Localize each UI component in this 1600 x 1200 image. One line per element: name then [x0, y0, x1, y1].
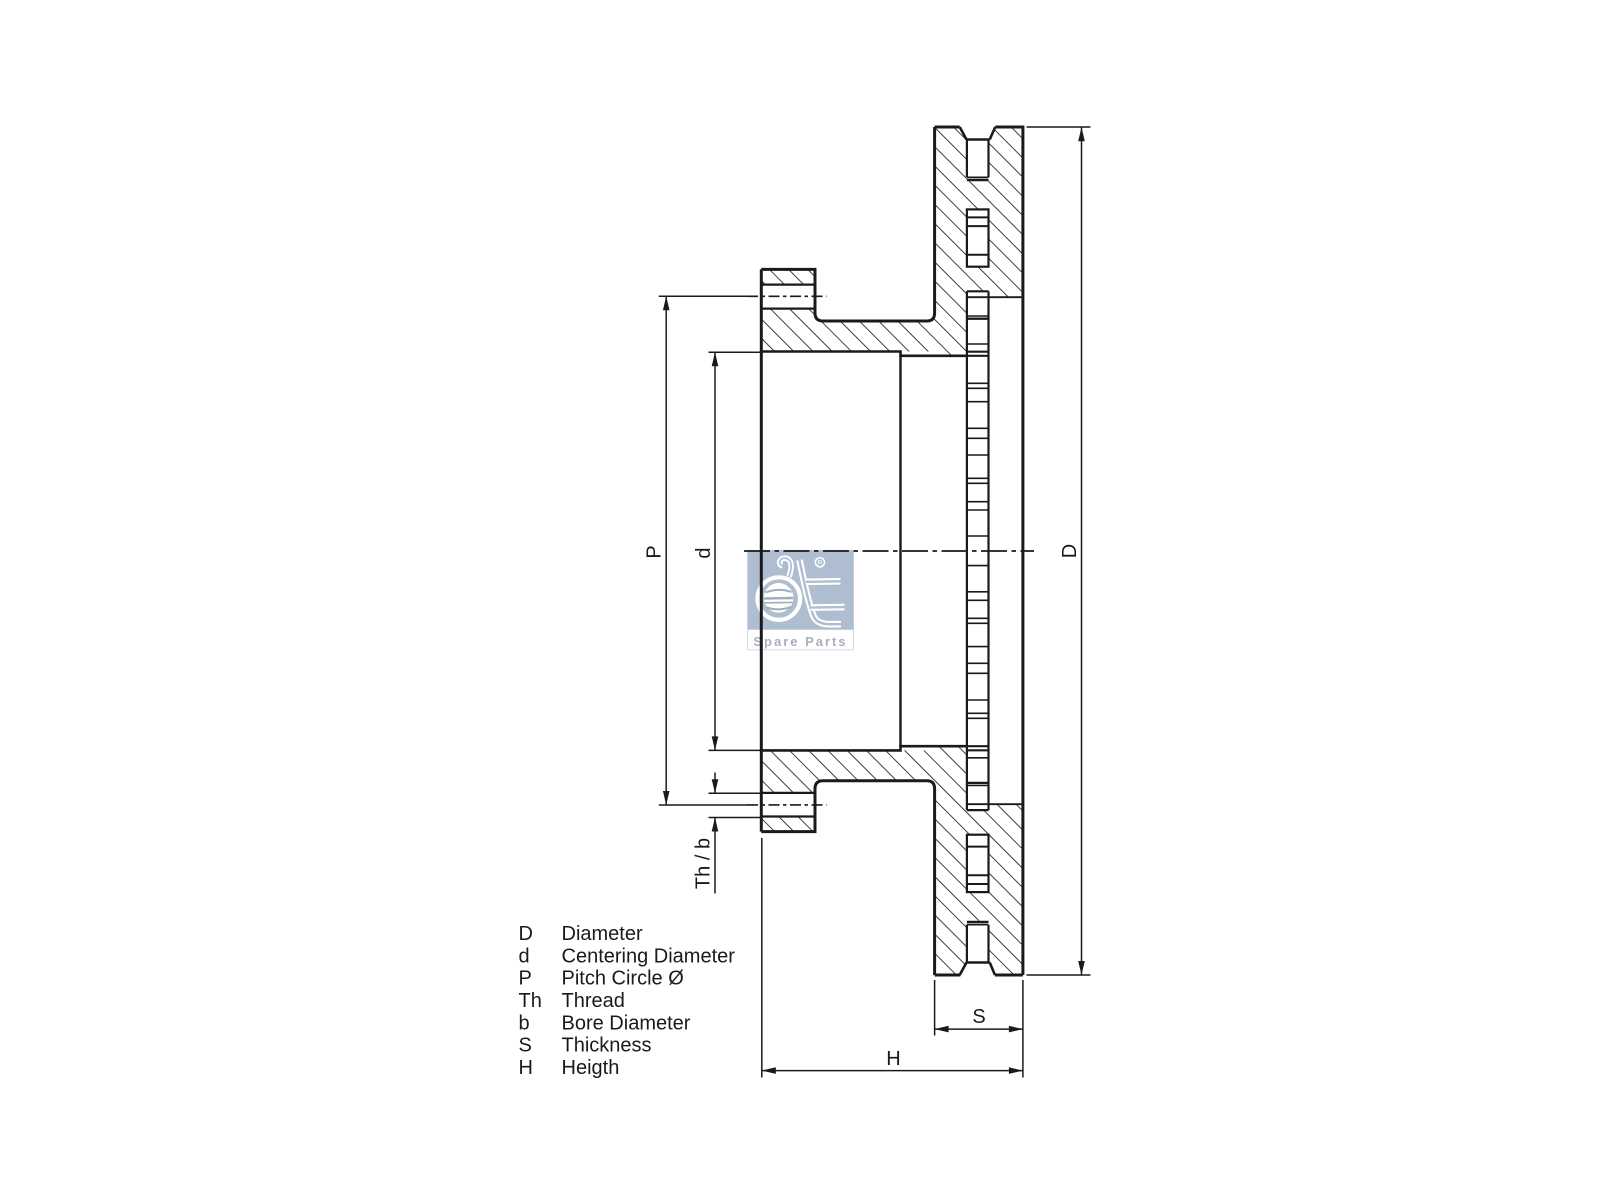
svg-text:R: R: [817, 560, 822, 567]
svg-text:Heigth: Heigth: [562, 1057, 620, 1079]
svg-text:Spare Parts: Spare Parts: [753, 634, 847, 649]
svg-text:d: d: [519, 945, 530, 967]
svg-text:H: H: [519, 1057, 533, 1079]
svg-text:Thickness: Thickness: [562, 1035, 652, 1057]
svg-text:S: S: [972, 1006, 985, 1028]
svg-text:D: D: [1059, 544, 1081, 558]
svg-text:Bore Diameter: Bore Diameter: [562, 1012, 691, 1034]
svg-text:P: P: [644, 545, 666, 558]
svg-text:Th / b: Th / b: [693, 838, 715, 889]
svg-text:d: d: [693, 547, 715, 558]
svg-text:D: D: [519, 923, 533, 945]
svg-text:Th: Th: [519, 990, 542, 1012]
svg-text:S: S: [519, 1035, 532, 1057]
svg-text:Centering Diameter: Centering Diameter: [562, 945, 736, 967]
svg-text:b: b: [519, 1012, 530, 1034]
svg-text:Thread: Thread: [562, 990, 625, 1012]
svg-text:Diameter: Diameter: [562, 923, 643, 945]
svg-text:P: P: [519, 968, 532, 990]
svg-text:Pitch Circle Ø: Pitch Circle Ø: [562, 968, 684, 990]
svg-text:H: H: [886, 1048, 900, 1070]
